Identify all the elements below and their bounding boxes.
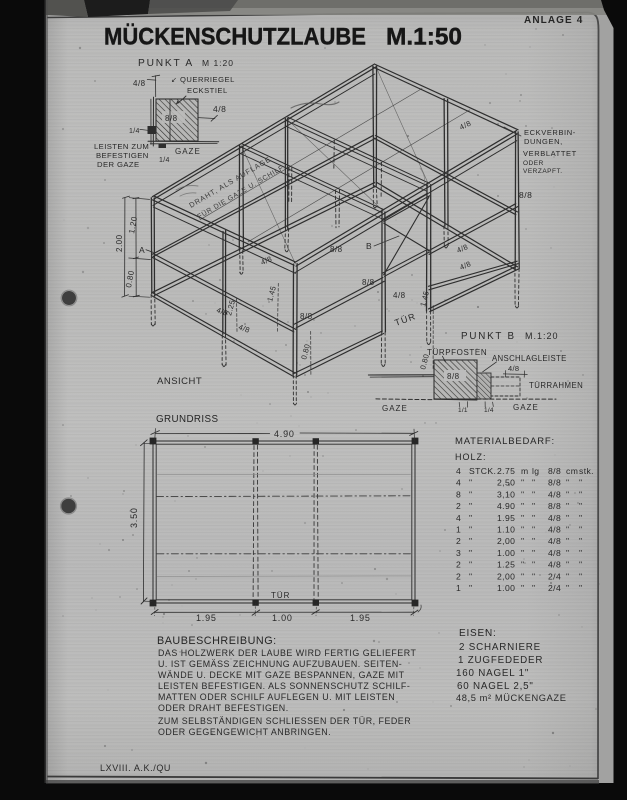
svg-text:STCK.: STCK. [469, 466, 496, 476]
svg-text:60 NAGEL 2,5": 60 NAGEL 2,5" [457, 681, 534, 692]
svg-text:lg: lg [532, 466, 540, 476]
svg-text:ANSICHT: ANSICHT [157, 376, 202, 387]
svg-text:4/8: 4/8 [458, 259, 472, 272]
svg-text:PUNKT B: PUNKT B [461, 331, 516, 342]
svg-text:U. IST GEMÄSS ZEICHNUNG AUFZUB: U. IST GEMÄSS ZEICHNUNG AUFZUBAUEN. SEIT… [158, 659, 402, 669]
svg-text:": " [521, 501, 524, 511]
svg-text:": " [566, 525, 569, 535]
svg-text:1/4: 1/4 [159, 157, 170, 164]
svg-text:cm: cm [566, 466, 578, 476]
svg-text:VERZAPFT.: VERZAPFT. [523, 168, 563, 175]
svg-text:": " [566, 536, 569, 546]
svg-text:ZUM SELBSTÄNDIGEN SCHLIESSEN D: ZUM SELBSTÄNDIGEN SCHLIESSEN DER TÜR, FE… [158, 716, 411, 726]
svg-text:4/8: 4/8 [548, 536, 561, 546]
svg-text:stk.: stk. [579, 466, 594, 476]
svg-text:1/4: 1/4 [484, 407, 494, 414]
svg-text:GAZE: GAZE [175, 147, 201, 156]
svg-text:M 1:20: M 1:20 [202, 58, 234, 68]
svg-text:ECKSTIEL: ECKSTIEL [187, 86, 228, 95]
svg-text:HOLZ:: HOLZ: [455, 452, 487, 462]
svg-text:": " [532, 478, 535, 488]
svg-text:ECKVERBIN-: ECKVERBIN- [524, 128, 576, 137]
svg-text:1 ZUGFEDEDER: 1 ZUGFEDEDER [458, 655, 543, 666]
svg-text:": " [469, 478, 472, 488]
svg-text:4: 4 [456, 478, 461, 488]
svg-text:0.80: 0.80 [124, 269, 136, 288]
svg-text:1/1: 1/1 [458, 407, 468, 414]
svg-text:WÄNDE U. DECKE MIT GAZE BESPAN: WÄNDE U. DECKE MIT GAZE BESPANNEN, GAZE … [158, 670, 405, 680]
svg-text:": " [579, 525, 582, 535]
svg-text:8/8: 8/8 [165, 114, 178, 123]
svg-text:": " [521, 536, 524, 546]
svg-text:4/8: 4/8 [458, 119, 473, 132]
svg-text:": " [521, 513, 524, 523]
svg-text:4/8: 4/8 [455, 242, 469, 255]
svg-text:": " [566, 560, 569, 570]
svg-text:0.80: 0.80 [299, 343, 312, 361]
svg-text:1: 1 [456, 583, 461, 593]
svg-text:": " [521, 548, 524, 558]
svg-text:2: 2 [456, 560, 461, 570]
svg-text:EISEN:: EISEN: [459, 628, 497, 639]
svg-text:ANLAGE 4: ANLAGE 4 [524, 15, 583, 26]
svg-text:BAUBESCHREIBUNG:: BAUBESCHREIBUNG: [157, 635, 277, 647]
svg-text:GRUNDRISS: GRUNDRISS [156, 414, 218, 425]
svg-text:2,50: 2,50 [497, 478, 515, 488]
svg-text:8/8: 8/8 [447, 372, 460, 381]
svg-text:BEFESTIGEN: BEFESTIGEN [96, 151, 149, 160]
svg-text:": " [532, 548, 535, 558]
svg-text:": " [521, 525, 524, 535]
svg-text:": " [566, 513, 569, 523]
svg-text:LEISTEN ZUM: LEISTEN ZUM [94, 142, 149, 151]
svg-text:2.75: 2.75 [497, 466, 515, 476]
svg-text:M.1:20: M.1:20 [525, 331, 559, 341]
svg-text:8/8: 8/8 [519, 190, 532, 200]
svg-text:4/8: 4/8 [393, 291, 406, 300]
svg-text:1.00: 1.00 [497, 548, 515, 558]
svg-text:": " [469, 583, 472, 593]
svg-text:ODER: ODER [523, 160, 544, 167]
svg-text:2 SCHARNIERE: 2 SCHARNIERE [459, 642, 541, 653]
svg-text:4/8: 4/8 [548, 525, 561, 535]
svg-text:": " [566, 583, 569, 593]
svg-text:1.95: 1.95 [196, 613, 217, 623]
svg-text:": " [469, 548, 472, 558]
svg-text:1.00: 1.00 [272, 613, 293, 623]
svg-text:DAS HOLZWERK DER LAUBE WIRD FE: DAS HOLZWERK DER LAUBE WIRD FERTIG GELIE… [158, 648, 416, 658]
svg-text:4: 4 [456, 513, 461, 523]
svg-text:ODER GEGENGEWICHT ANBRINGEN.: ODER GEGENGEWICHT ANBRINGEN. [158, 727, 331, 737]
svg-text:4/8: 4/8 [259, 254, 273, 267]
svg-text:": " [566, 489, 569, 499]
svg-text:1.25: 1.25 [497, 560, 515, 570]
svg-text:8/8: 8/8 [548, 478, 561, 488]
svg-text:160 NAGEL 1": 160 NAGEL 1" [456, 668, 529, 679]
svg-text:": " [579, 571, 582, 581]
svg-text:4/8: 4/8 [508, 364, 519, 373]
svg-text:": " [566, 548, 569, 558]
svg-text:4/8: 4/8 [133, 79, 146, 88]
svg-text:8/8: 8/8 [300, 312, 313, 321]
svg-text:": " [469, 489, 472, 499]
svg-text:8: 8 [456, 489, 461, 499]
svg-text:1.00: 1.00 [497, 583, 515, 593]
svg-text:": " [532, 501, 535, 511]
svg-text:MATERIALBEDARF:: MATERIALBEDARF: [455, 436, 555, 447]
svg-text:1/4: 1/4 [129, 128, 140, 135]
svg-text:TÜR: TÜR [393, 311, 417, 328]
svg-text:": " [579, 513, 582, 523]
svg-text:2,00: 2,00 [497, 571, 515, 581]
svg-text:": " [532, 583, 535, 593]
svg-text:48,5 m² MÜCKENGAZE: 48,5 m² MÜCKENGAZE [456, 693, 567, 703]
svg-text:DUNGEN,: DUNGEN, [524, 137, 563, 146]
svg-text:": " [579, 548, 582, 558]
svg-text:LEISTEN BEFESTIGEN. ALS SONNEN: LEISTEN BEFESTIGEN. ALS SONNENSCHUTZ SCH… [158, 681, 410, 691]
svg-text:GAZE: GAZE [513, 403, 539, 412]
svg-text:8/8: 8/8 [362, 278, 375, 287]
svg-text:TÜRPFOSTEN: TÜRPFOSTEN [427, 348, 487, 357]
svg-text:8/8: 8/8 [548, 501, 561, 511]
svg-text:TÜR: TÜR [271, 591, 290, 600]
svg-text:4: 4 [456, 466, 461, 476]
svg-text:8/8: 8/8 [330, 245, 343, 254]
svg-text:4/8: 4/8 [213, 104, 226, 114]
svg-text:m: m [521, 466, 529, 476]
svg-text:": " [532, 571, 535, 581]
svg-text:": " [566, 501, 569, 511]
svg-text:": " [469, 513, 472, 523]
svg-text:": " [469, 501, 472, 511]
svg-text:PUNKT A: PUNKT A [138, 58, 194, 69]
svg-text:1.45: 1.45 [418, 290, 431, 308]
svg-text:TÜRRAHMEN: TÜRRAHMEN [529, 381, 583, 390]
svg-text:": " [521, 489, 524, 499]
svg-text:": " [469, 560, 472, 570]
svg-text:": " [532, 525, 535, 535]
svg-text:1.20: 1.20 [127, 215, 139, 234]
svg-text:M.1:50: M.1:50 [386, 24, 462, 51]
svg-text:4.90: 4.90 [497, 501, 515, 511]
svg-text:": " [521, 583, 524, 593]
svg-text:1: 1 [456, 525, 461, 535]
svg-text:QUERRIEGEL: QUERRIEGEL [180, 75, 235, 84]
svg-text:": " [579, 536, 582, 546]
svg-text:4/8: 4/8 [548, 548, 561, 558]
svg-text:1.95: 1.95 [497, 513, 515, 523]
svg-text:2/4: 2/4 [548, 583, 561, 593]
svg-text:": " [521, 560, 524, 570]
svg-text:4/8: 4/8 [548, 489, 561, 499]
svg-text:": " [532, 560, 535, 570]
svg-text:": " [469, 536, 472, 546]
svg-text:VERBLATTET: VERBLATTET [523, 149, 577, 158]
svg-text:": " [579, 583, 582, 593]
svg-text:": " [469, 525, 472, 535]
svg-text:": " [532, 489, 535, 499]
svg-text:3: 3 [456, 548, 461, 558]
svg-text:": " [469, 571, 472, 581]
svg-text:GAZE: GAZE [382, 404, 408, 413]
svg-text:↙: ↙ [171, 77, 177, 84]
svg-text:4/8: 4/8 [548, 513, 561, 523]
svg-text:": " [521, 571, 524, 581]
svg-text:": " [579, 560, 582, 570]
svg-text:2: 2 [456, 571, 461, 581]
svg-text:": " [566, 478, 569, 488]
svg-text:4/8: 4/8 [237, 322, 251, 334]
svg-text:1.95: 1.95 [350, 613, 371, 623]
svg-text:4.90: 4.90 [274, 429, 295, 439]
svg-text:LXVIII. A.K./QU: LXVIII. A.K./QU [100, 763, 171, 773]
svg-text:MÜCKENSCHUTZLAUBE: MÜCKENSCHUTZLAUBE [104, 24, 366, 51]
svg-text:": " [532, 536, 535, 546]
svg-text:2: 2 [456, 501, 461, 511]
svg-text:1.10: 1.10 [497, 525, 515, 535]
svg-text:ANSCHLAGLEISTE: ANSCHLAGLEISTE [492, 354, 567, 363]
svg-text:8/8: 8/8 [548, 466, 561, 476]
svg-text:A: A [139, 245, 145, 255]
svg-text:": " [521, 478, 524, 488]
svg-text:": " [566, 571, 569, 581]
svg-text:": " [579, 489, 582, 499]
svg-text:4/8: 4/8 [548, 560, 561, 570]
svg-text:2/4: 2/4 [548, 571, 561, 581]
svg-text:MATTEN ODER SCHILF AUFLEGEN U.: MATTEN ODER SCHILF AUFLEGEN U. MIT LEIST… [158, 692, 395, 702]
svg-text:1.45: 1.45 [265, 285, 278, 303]
svg-text:DER GAZE: DER GAZE [97, 160, 140, 169]
svg-text:B: B [366, 241, 372, 251]
svg-text:2,00: 2,00 [497, 536, 515, 546]
svg-text:3.50: 3.50 [129, 507, 139, 528]
svg-text:ODER DRAHT BEFESTIGEN.: ODER DRAHT BEFESTIGEN. [158, 703, 289, 713]
svg-text:2.00: 2.00 [115, 234, 124, 252]
svg-text:": " [579, 478, 582, 488]
svg-text:": " [532, 513, 535, 523]
svg-text:": " [579, 501, 582, 511]
svg-text:3,10: 3,10 [497, 489, 515, 499]
svg-text:2: 2 [456, 536, 461, 546]
